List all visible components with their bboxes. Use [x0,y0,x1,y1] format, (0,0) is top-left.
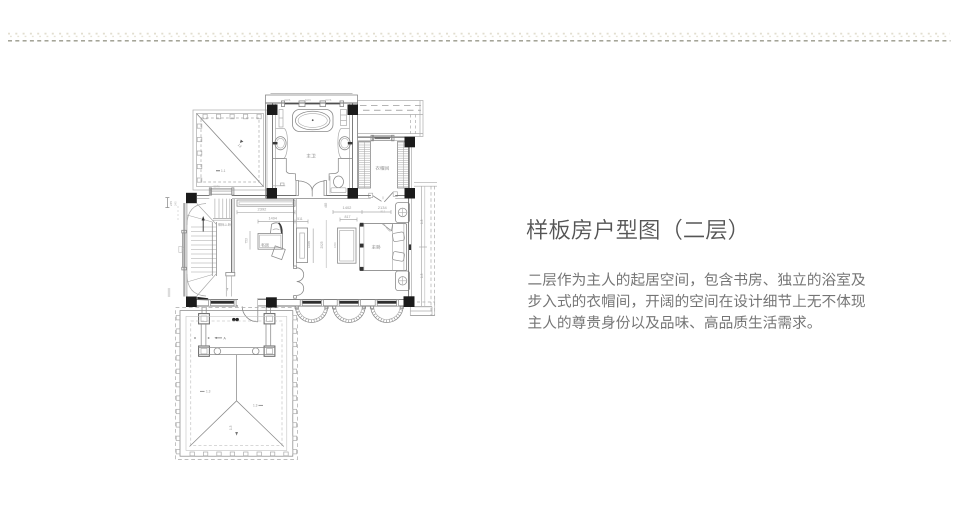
svg-text:1.3: 1.3 [206,390,211,394]
svg-text:245: 245 [169,201,173,206]
svg-text:1496: 1496 [307,241,311,248]
svg-text:245: 245 [174,201,178,206]
svg-text:813: 813 [381,209,386,213]
svg-text:1.3: 1.3 [253,404,258,408]
svg-text:6076: 6076 [285,98,291,102]
svg-text:5076: 5076 [214,184,221,188]
svg-text:1.3: 1.3 [420,219,424,224]
svg-text:2925: 2925 [320,241,324,248]
svg-text:1.1: 1.1 [221,169,226,173]
svg-text:1.3: 1.3 [229,425,233,430]
svg-text:1402: 1402 [343,205,353,210]
svg-text:6076: 6076 [305,98,311,102]
svg-text:1.3: 1.3 [420,273,424,278]
svg-text:7: 7 [227,288,229,292]
svg-text:6076: 6076 [326,98,332,102]
svg-text:465: 465 [324,202,328,208]
svg-text:1494: 1494 [269,217,277,221]
svg-text:2392: 2392 [258,207,268,212]
svg-text:753: 753 [245,238,249,244]
svg-text:A: A [224,336,227,340]
svg-text:511: 511 [297,217,303,221]
svg-text:13: 13 [237,143,243,149]
svg-text:1800: 1800 [333,242,337,248]
svg-text:817: 817 [345,215,351,219]
